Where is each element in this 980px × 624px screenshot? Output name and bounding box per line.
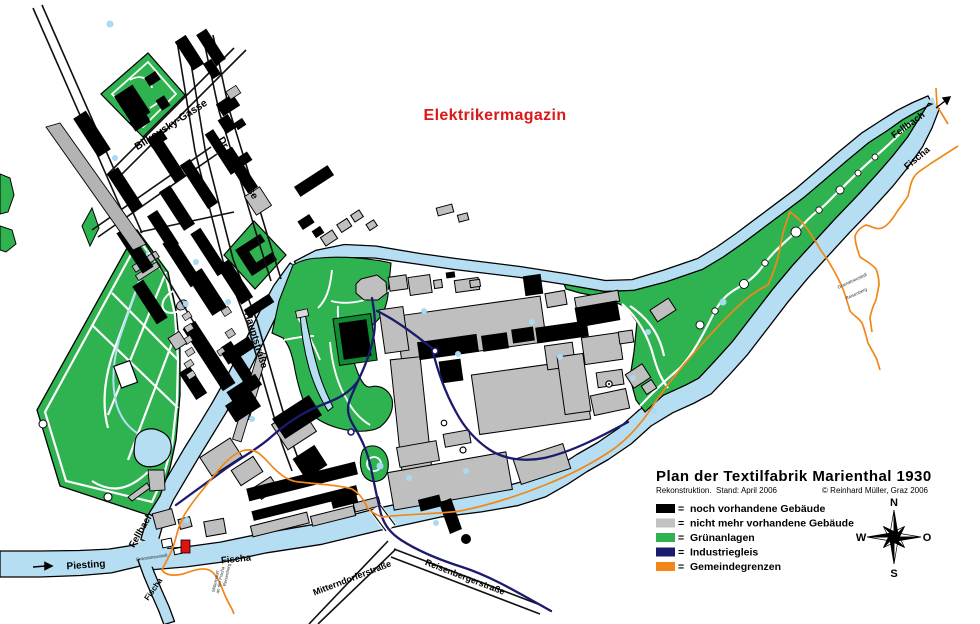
svg-text:= noch vorhandene Gebäude: = noch vorhandene Gebäude <box>678 503 825 515</box>
svg-text:W: W <box>856 532 867 544</box>
svg-text:© Reinhard Müller, Graz 2006: © Reinhard Müller, Graz 2006 <box>822 486 928 495</box>
svg-text:= nicht mehr vorhandene Gebäu: = nicht mehr vorhandene Gebäude <box>678 518 854 530</box>
svg-text:= Gemeindegrenzen: = Gemeindegrenzen <box>678 561 781 573</box>
svg-text:Plan der Textilfabrik Marienth: Plan der Textilfabrik Marienthal 1930 <box>656 468 932 485</box>
svg-text:Rekonstruktion. Stand: April: Rekonstruktion. Stand: April 2006 <box>656 486 778 495</box>
svg-text:Elektrikermagazin: Elektrikermagazin <box>424 107 567 124</box>
svg-text:= Grünanlagen: = Grünanlagen <box>678 532 755 544</box>
svg-text:S: S <box>890 568 897 580</box>
svg-text:N: N <box>890 497 898 509</box>
svg-text:= Industriegleis: = Industriegleis <box>678 547 758 559</box>
svg-text:O: O <box>923 532 932 544</box>
